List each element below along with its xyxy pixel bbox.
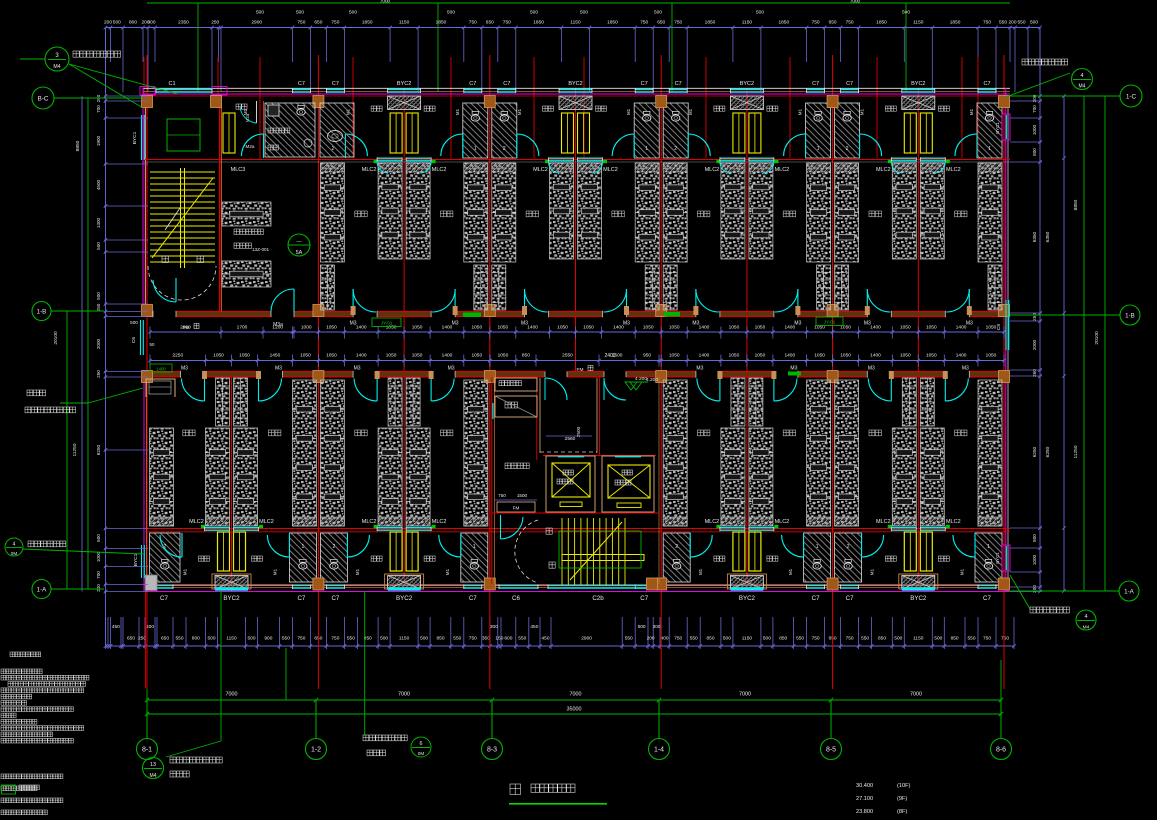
svg-text:6350: 6350 xyxy=(1045,231,1051,242)
svg-text:7000: 7000 xyxy=(380,0,391,4)
svg-text:2: 2 xyxy=(847,544,850,550)
svg-text:13: 13 xyxy=(150,762,156,768)
svg-text:1050: 1050 xyxy=(239,353,250,359)
svg-text:1400: 1400 xyxy=(956,353,967,359)
svg-text:C7: C7 xyxy=(297,595,305,602)
svg-text:650: 650 xyxy=(161,636,169,642)
svg-text:C7: C7 xyxy=(812,595,820,602)
svg-text:1-A: 1-A xyxy=(1124,589,1135,596)
svg-text:0M: 0M xyxy=(11,551,18,556)
svg-text:MLC2: MLC2 xyxy=(432,519,447,525)
svg-text:27.100: 27.100 xyxy=(856,796,873,802)
svg-text:1400: 1400 xyxy=(356,353,367,359)
svg-text:0M: 0M xyxy=(418,751,425,756)
svg-text:C7: C7 xyxy=(503,81,510,87)
svg-text:150: 150 xyxy=(495,636,503,642)
svg-text:M3: M3 xyxy=(181,366,188,372)
svg-text:2350: 2350 xyxy=(178,20,189,26)
svg-text:M3: M3 xyxy=(962,366,969,372)
svg-text:M3: M3 xyxy=(696,366,703,372)
svg-text:6350: 6350 xyxy=(1032,231,1037,242)
svg-text:BYC2: BYC2 xyxy=(911,81,925,87)
svg-text:1850: 1850 xyxy=(950,20,961,26)
svg-text:1150: 1150 xyxy=(399,20,410,26)
svg-text:850: 850 xyxy=(706,636,714,642)
svg-text:BYC1: BYC1 xyxy=(995,552,1000,564)
svg-text:35000: 35000 xyxy=(567,707,582,713)
svg-text:1400: 1400 xyxy=(96,217,101,228)
svg-text:500: 500 xyxy=(96,242,101,250)
svg-text:1000: 1000 xyxy=(301,325,312,331)
svg-text:750: 750 xyxy=(297,636,305,642)
svg-text:1050: 1050 xyxy=(840,353,851,359)
svg-text:M3: M3 xyxy=(354,366,361,372)
svg-text:6250: 6250 xyxy=(1045,446,1051,457)
svg-text:1400: 1400 xyxy=(699,353,710,359)
svg-text:1150: 1150 xyxy=(399,636,410,642)
svg-text:50: 50 xyxy=(150,342,155,347)
svg-text:1400: 1400 xyxy=(156,367,166,372)
svg-text:1400: 1400 xyxy=(356,325,367,331)
svg-text:M1: M1 xyxy=(860,108,865,115)
svg-text:M4: M4 xyxy=(1079,84,1086,90)
svg-text:750: 750 xyxy=(640,20,648,26)
svg-text:4: 4 xyxy=(13,542,16,548)
svg-text:1050: 1050 xyxy=(326,325,337,331)
svg-text:1150: 1150 xyxy=(742,20,753,26)
svg-text:11250: 11250 xyxy=(1073,445,1079,458)
svg-text:250: 250 xyxy=(96,370,101,378)
svg-text:7000: 7000 xyxy=(910,692,922,698)
svg-text:1400: 1400 xyxy=(784,325,795,331)
svg-text:1050: 1050 xyxy=(300,353,311,359)
svg-text:500: 500 xyxy=(296,10,304,16)
svg-text:20100: 20100 xyxy=(1094,331,1100,345)
svg-text:1850: 1850 xyxy=(436,20,447,26)
svg-text:1150: 1150 xyxy=(913,20,924,26)
svg-text:400: 400 xyxy=(661,636,669,642)
svg-text:1-4: 1-4 xyxy=(654,747,664,754)
svg-text:M3: M3 xyxy=(275,366,282,372)
svg-text:M1: M1 xyxy=(969,108,974,115)
svg-text:7000: 7000 xyxy=(398,692,410,698)
svg-text:500: 500 xyxy=(380,636,388,642)
svg-text:250: 250 xyxy=(1032,313,1037,321)
svg-text:600: 600 xyxy=(96,534,101,542)
svg-text:2: 2 xyxy=(675,544,678,550)
svg-text:MLC2: MLC2 xyxy=(705,519,720,525)
svg-text:650: 650 xyxy=(829,20,837,26)
svg-text:C6: C6 xyxy=(131,337,137,343)
svg-text:M1: M1 xyxy=(455,108,460,115)
svg-text:1: 1 xyxy=(474,146,477,152)
svg-text:6250: 6250 xyxy=(96,444,101,455)
svg-text:1850: 1850 xyxy=(607,20,618,26)
svg-text:200: 200 xyxy=(104,20,112,26)
svg-text:B-C: B-C xyxy=(37,96,48,103)
svg-text:C7: C7 xyxy=(469,81,476,87)
svg-text:MLC2: MLC2 xyxy=(362,519,377,525)
svg-text:2550: 2550 xyxy=(562,353,573,359)
svg-text:650: 650 xyxy=(127,636,135,642)
svg-text:30.400: 30.400 xyxy=(856,783,873,789)
svg-text:M1: M1 xyxy=(183,568,188,575)
svg-text:750: 750 xyxy=(812,20,820,26)
svg-text:1050: 1050 xyxy=(926,325,937,331)
svg-text:8-1: 8-1 xyxy=(142,747,152,754)
svg-text:450: 450 xyxy=(530,624,538,630)
svg-text:C7: C7 xyxy=(641,81,648,87)
svg-text:750: 750 xyxy=(498,493,506,498)
svg-text:550: 550 xyxy=(625,636,633,642)
svg-text:1050: 1050 xyxy=(669,325,680,331)
svg-text:750: 750 xyxy=(469,636,477,642)
svg-text:C7: C7 xyxy=(469,595,477,602)
svg-text:BYC2: BYC2 xyxy=(739,595,756,602)
svg-text:1050: 1050 xyxy=(386,353,397,359)
svg-text:200: 200 xyxy=(647,636,655,642)
svg-text:1050: 1050 xyxy=(412,353,423,359)
svg-text:550: 550 xyxy=(967,636,975,642)
svg-text:1050: 1050 xyxy=(986,325,997,331)
svg-text:1050: 1050 xyxy=(926,353,937,359)
svg-text:C7: C7 xyxy=(983,81,990,87)
svg-text:M3: M3 xyxy=(868,366,875,372)
svg-text:M1: M1 xyxy=(626,108,631,115)
svg-text:700: 700 xyxy=(96,105,101,113)
svg-text:250: 250 xyxy=(211,20,219,26)
svg-text:C7: C7 xyxy=(298,81,305,87)
svg-text:4.200: 4.200 xyxy=(646,377,658,383)
svg-text:BYC2: BYC2 xyxy=(397,81,411,87)
svg-text:MLC2: MLC2 xyxy=(946,167,961,173)
svg-text:1050: 1050 xyxy=(326,353,337,359)
svg-text:1400: 1400 xyxy=(870,325,881,331)
svg-text:—: — xyxy=(297,239,302,245)
svg-text:FM: FM xyxy=(577,367,584,373)
svg-text:550: 550 xyxy=(282,636,290,642)
svg-text:5A: 5A xyxy=(296,250,303,256)
svg-text:1850: 1850 xyxy=(778,20,789,26)
svg-text:M3: M3 xyxy=(452,321,459,327)
svg-text:1400: 1400 xyxy=(870,353,881,359)
svg-text:M1: M1 xyxy=(688,108,693,115)
svg-text:2: 2 xyxy=(674,146,677,152)
svg-text:350: 350 xyxy=(482,636,490,642)
svg-text:JY-01: JY-01 xyxy=(381,321,393,326)
svg-text:1050: 1050 xyxy=(755,353,766,359)
svg-text:2900: 2900 xyxy=(251,20,262,26)
svg-text:500: 500 xyxy=(894,636,902,642)
svg-text:500: 500 xyxy=(207,636,215,642)
svg-text:450: 450 xyxy=(541,636,549,642)
svg-text:550: 550 xyxy=(690,636,698,642)
svg-text:1: 1 xyxy=(988,146,991,152)
svg-text:650: 650 xyxy=(486,20,494,26)
svg-text:1050: 1050 xyxy=(986,353,997,359)
svg-text:C7: C7 xyxy=(983,595,991,602)
svg-text:1050: 1050 xyxy=(213,353,224,359)
svg-text:1400: 1400 xyxy=(527,325,538,331)
svg-text:BYC1: BYC1 xyxy=(133,553,139,566)
svg-text:550: 550 xyxy=(861,636,869,642)
svg-text:1400: 1400 xyxy=(442,325,453,331)
svg-text:MLC2: MLC2 xyxy=(603,167,618,173)
svg-text:(10F): (10F) xyxy=(897,783,911,789)
svg-text:MLC2: MLC2 xyxy=(775,167,790,173)
svg-text:M1: M1 xyxy=(869,568,874,575)
svg-text:1900: 1900 xyxy=(96,135,101,146)
svg-text:700: 700 xyxy=(96,571,101,579)
svg-text:650: 650 xyxy=(314,20,322,26)
svg-text:1-C: 1-C xyxy=(1126,94,1137,101)
svg-text:750: 750 xyxy=(674,20,682,26)
svg-text:1050: 1050 xyxy=(729,325,740,331)
svg-text:MLC2: MLC2 xyxy=(946,519,961,525)
svg-text:11250: 11250 xyxy=(72,443,78,456)
svg-text:1050: 1050 xyxy=(900,325,911,331)
svg-text:20100: 20100 xyxy=(53,331,59,345)
svg-text:C7: C7 xyxy=(846,595,854,602)
svg-text:7000: 7000 xyxy=(226,692,238,698)
svg-text:7000: 7000 xyxy=(850,0,861,4)
svg-text:600: 600 xyxy=(504,636,512,642)
svg-text:550: 550 xyxy=(796,636,804,642)
svg-text:M3: M3 xyxy=(790,366,797,372)
svg-text:550: 550 xyxy=(175,636,183,642)
svg-text:1050: 1050 xyxy=(814,353,825,359)
svg-text:1: 1 xyxy=(645,146,648,152)
svg-text:8-5: 8-5 xyxy=(826,747,836,754)
svg-text:500: 500 xyxy=(530,10,538,16)
svg-text:750: 750 xyxy=(297,20,305,26)
svg-text:M1: M1 xyxy=(445,568,450,575)
svg-text:800: 800 xyxy=(1032,534,1037,542)
svg-text:C2b: C2b xyxy=(592,595,604,602)
svg-text:1: 1 xyxy=(473,544,476,550)
svg-text:1700: 1700 xyxy=(237,325,248,331)
svg-text:M3: M3 xyxy=(966,321,973,327)
svg-text:2900: 2900 xyxy=(581,636,592,642)
svg-text:500: 500 xyxy=(934,636,942,642)
svg-text:500: 500 xyxy=(1030,20,1038,26)
svg-text:550: 550 xyxy=(347,636,355,642)
svg-text:1050: 1050 xyxy=(557,325,568,331)
svg-text:750: 750 xyxy=(674,636,682,642)
svg-text:750: 750 xyxy=(846,20,854,26)
svg-text:2560: 2560 xyxy=(565,436,576,442)
svg-text:2000: 2000 xyxy=(1032,339,1037,350)
svg-text:13Z-001: 13Z-001 xyxy=(252,247,270,252)
svg-text:2: 2 xyxy=(846,146,849,152)
svg-text:1050: 1050 xyxy=(471,325,482,331)
svg-text:1-2: 1-2 xyxy=(311,747,321,754)
svg-text:500: 500 xyxy=(247,636,255,642)
svg-text:1850: 1850 xyxy=(876,20,887,26)
svg-text:200: 200 xyxy=(1008,20,1016,26)
svg-text:500: 500 xyxy=(580,10,588,16)
svg-text:550: 550 xyxy=(999,20,1007,26)
svg-text:MLC2: MLC2 xyxy=(259,519,274,525)
svg-text:800: 800 xyxy=(192,636,200,642)
svg-text:M3: M3 xyxy=(794,321,801,327)
svg-text:1200: 1200 xyxy=(272,325,283,331)
svg-text:650: 650 xyxy=(657,20,665,26)
svg-text:7000: 7000 xyxy=(739,692,751,698)
svg-text:1850: 1850 xyxy=(533,20,544,26)
svg-text:500: 500 xyxy=(349,10,357,16)
svg-text:M1: M1 xyxy=(355,568,360,575)
svg-text:1400: 1400 xyxy=(442,353,453,359)
svg-text:1: 1 xyxy=(302,544,305,550)
svg-text:C7: C7 xyxy=(846,81,853,87)
svg-text:1: 1 xyxy=(987,544,990,550)
svg-text:2: 2 xyxy=(333,544,336,550)
svg-text:BYC1: BYC1 xyxy=(132,131,138,144)
svg-text:BYC2: BYC2 xyxy=(740,81,754,87)
svg-text:C7: C7 xyxy=(675,81,682,87)
svg-text:200: 200 xyxy=(1032,94,1037,102)
svg-text:M4: M4 xyxy=(1083,625,1090,631)
svg-text:500: 500 xyxy=(756,10,764,16)
svg-text:(9F): (9F) xyxy=(897,796,907,802)
svg-text:850: 850 xyxy=(951,636,959,642)
svg-text:1400: 1400 xyxy=(956,325,967,331)
svg-text:6: 6 xyxy=(420,741,423,747)
svg-text:1400: 1400 xyxy=(699,325,710,331)
svg-text:M1: M1 xyxy=(959,568,964,575)
svg-text:750: 750 xyxy=(331,636,339,642)
svg-text:FM: FM xyxy=(513,506,520,511)
svg-text:M4: M4 xyxy=(150,773,157,779)
svg-text:M1: M1 xyxy=(698,568,703,575)
svg-text:BYC2: BYC2 xyxy=(223,595,240,602)
svg-text:1050: 1050 xyxy=(412,325,423,331)
svg-text:8-3: 8-3 xyxy=(487,747,497,754)
svg-text:JY-01: JY-01 xyxy=(824,320,836,325)
svg-text:MLC2: MLC2 xyxy=(432,167,447,173)
svg-text:850: 850 xyxy=(779,636,787,642)
svg-text:250: 250 xyxy=(96,303,101,311)
svg-text:500: 500 xyxy=(654,10,662,16)
svg-text:M1: M1 xyxy=(517,108,522,115)
svg-text:C9: C9 xyxy=(996,324,1002,330)
svg-text:1050: 1050 xyxy=(498,353,509,359)
svg-text:750: 750 xyxy=(1001,636,1009,642)
svg-text:200: 200 xyxy=(96,584,101,592)
svg-text:1150: 1150 xyxy=(913,636,924,642)
svg-text:M2a: M2a xyxy=(246,144,255,149)
svg-text:750: 750 xyxy=(812,636,820,642)
svg-text:800: 800 xyxy=(129,20,137,26)
svg-text:1050: 1050 xyxy=(729,353,740,359)
svg-text:(8F): (8F) xyxy=(897,809,907,815)
svg-text:850: 850 xyxy=(878,636,886,642)
svg-text:MLC2: MLC2 xyxy=(533,167,548,173)
svg-text:C7: C7 xyxy=(812,81,819,87)
svg-text:750: 750 xyxy=(983,20,991,26)
svg-text:C6: C6 xyxy=(512,595,520,602)
svg-text:C1: C1 xyxy=(168,81,175,87)
svg-text:850: 850 xyxy=(436,636,444,642)
svg-text:1150: 1150 xyxy=(570,20,581,26)
svg-text:BYC1: BYC1 xyxy=(995,122,1000,134)
svg-text:800: 800 xyxy=(1032,148,1037,156)
svg-text:1: 1 xyxy=(816,544,819,550)
svg-text:M1: M1 xyxy=(788,568,793,575)
svg-text:8-6: 8-6 xyxy=(996,747,1006,754)
svg-text:500: 500 xyxy=(113,20,121,26)
svg-text:4: 4 xyxy=(1084,614,1087,620)
svg-text:C7: C7 xyxy=(160,595,168,602)
svg-text:250: 250 xyxy=(1032,369,1037,377)
svg-text:M3: M3 xyxy=(448,366,455,372)
svg-text:850: 850 xyxy=(522,353,530,359)
svg-text:8850: 8850 xyxy=(75,140,81,151)
svg-text:1000: 1000 xyxy=(1032,124,1037,135)
svg-text:550: 550 xyxy=(453,636,461,642)
svg-text:1050: 1050 xyxy=(755,325,766,331)
svg-text:200: 200 xyxy=(1032,585,1037,593)
svg-text:1050: 1050 xyxy=(471,353,482,359)
svg-text:950: 950 xyxy=(643,353,651,359)
svg-text:1850: 1850 xyxy=(705,20,716,26)
svg-text:M3: M3 xyxy=(623,321,630,327)
svg-text:M1: M1 xyxy=(798,108,803,115)
svg-text:1400: 1400 xyxy=(784,353,795,359)
svg-text:500: 500 xyxy=(638,624,646,630)
svg-text:1: 1 xyxy=(817,146,820,152)
svg-text:750: 750 xyxy=(503,20,511,26)
svg-text:MLC2: MLC2 xyxy=(876,519,891,525)
svg-text:1000: 1000 xyxy=(96,551,101,562)
svg-text:1400: 1400 xyxy=(613,325,624,331)
svg-text:1000: 1000 xyxy=(1032,554,1037,565)
svg-text:500: 500 xyxy=(420,636,428,642)
svg-text:1-B: 1-B xyxy=(37,309,47,316)
svg-text:2: 2 xyxy=(163,544,166,550)
svg-text:700: 700 xyxy=(1032,105,1037,113)
svg-text:1850: 1850 xyxy=(362,20,373,26)
svg-text:MLC2: MLC2 xyxy=(775,519,790,525)
svg-text:750: 750 xyxy=(469,20,477,26)
svg-text:1050: 1050 xyxy=(497,325,508,331)
svg-text:2000: 2000 xyxy=(96,338,101,349)
svg-text:M1: M1 xyxy=(273,568,278,575)
svg-text:450: 450 xyxy=(112,624,120,630)
svg-text:MLC2: MLC2 xyxy=(189,519,204,525)
svg-text:4500: 4500 xyxy=(96,179,101,190)
svg-text:C7: C7 xyxy=(332,81,339,87)
svg-text:8850: 8850 xyxy=(1073,199,1079,210)
svg-text:1150: 1150 xyxy=(226,636,237,642)
svg-text:750: 750 xyxy=(846,636,854,642)
svg-text:7000: 7000 xyxy=(570,692,582,698)
svg-text:750: 750 xyxy=(331,20,339,26)
svg-text:23.800: 23.800 xyxy=(856,809,873,815)
svg-text:2250: 2250 xyxy=(172,353,183,359)
svg-text:M4: M4 xyxy=(53,64,60,70)
svg-text:900: 900 xyxy=(264,636,272,642)
svg-text:550: 550 xyxy=(1017,20,1025,26)
svg-text:2: 2 xyxy=(503,146,506,152)
svg-text:1-A: 1-A xyxy=(37,587,48,594)
svg-text:550: 550 xyxy=(518,636,526,642)
svg-text:BYC2: BYC2 xyxy=(568,81,582,87)
svg-text:300: 300 xyxy=(147,20,155,26)
svg-text:1-B: 1-B xyxy=(1125,313,1135,320)
svg-text:BYC2: BYC2 xyxy=(910,595,927,602)
